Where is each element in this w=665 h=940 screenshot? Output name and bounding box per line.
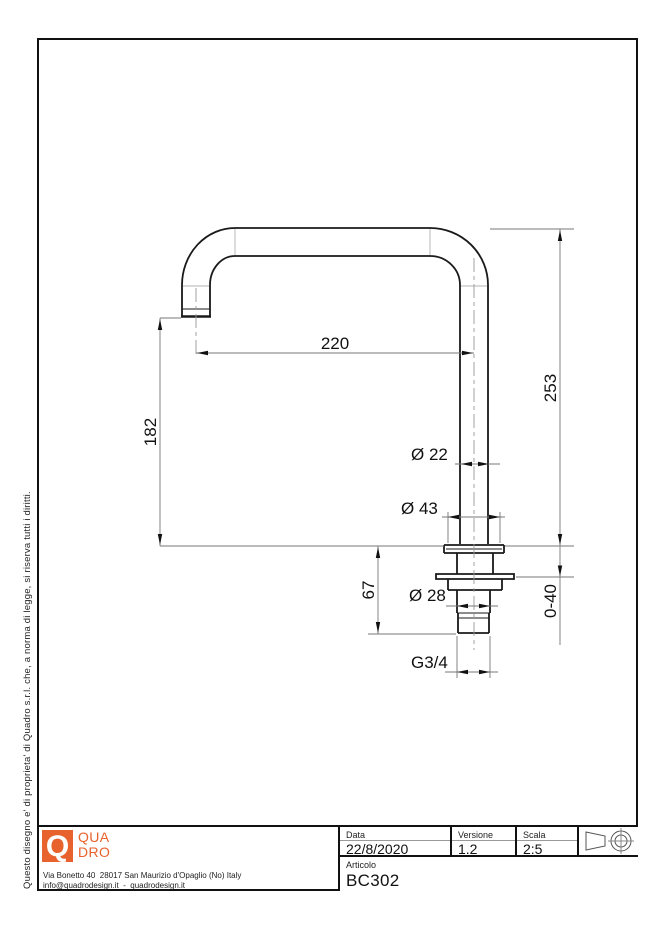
titleblock-cell-projection [577,825,638,855]
dim-thread-label: G3/4 [411,653,448,672]
scala-label: Scala [523,830,546,840]
tube-outer-edge [182,228,488,544]
titleblock-cell-versione: Versione 1.2 [450,825,515,855]
detail-lines [182,309,502,618]
dim-67-label: 67 [359,581,378,600]
technical-drawing: 220 253 182 67 0-40 Ø 22 Ø 43 Ø 28 G3/4 [0,0,665,940]
dim-220-label: 220 [321,334,349,353]
titleblock-cell-articolo: Articolo BC302 [338,855,638,891]
company-address: Via Bonetto 40 28017 San Maurizio d'Opag… [43,871,241,880]
data-label: Data [346,830,365,840]
logo-word-bottom: DRO [78,845,110,860]
first-angle-projection-icon [579,827,638,855]
company-contacts: info@quadrodesign.it - quadrodesign.it [43,881,185,890]
titleblock-cell-scala: Scala 2:5 [515,825,577,855]
articolo-label: Articolo [346,860,376,870]
quadro-logo-icon: Q [42,830,73,862]
articolo-value: BC302 [346,871,399,891]
titleblock-cell-data: Data 22/8/2020 [338,825,450,855]
dimension-arrowheads [158,230,562,674]
mounting-base-outline [436,545,514,633]
dimension-labels: 220 253 182 67 0-40 Ø 22 Ø 43 Ø 28 G3/4 [141,334,560,672]
dim-253-label: 253 [541,374,560,402]
dim-182-label: 182 [141,418,160,446]
company-block: Q QUA DRO Via Bonetto 40 28017 San Mauri… [38,825,338,891]
versione-label: Versione [458,830,493,840]
dim-dia22-label: Ø 22 [411,445,448,464]
dim-dia28-label: Ø 28 [409,586,446,605]
logo-word-top: QUA [78,830,110,845]
dim-dia43-label: Ø 43 [401,499,438,518]
dimension-lines [160,229,574,678]
dim-0-40-label: 0-40 [541,584,560,618]
faucet-outline [181,228,514,633]
